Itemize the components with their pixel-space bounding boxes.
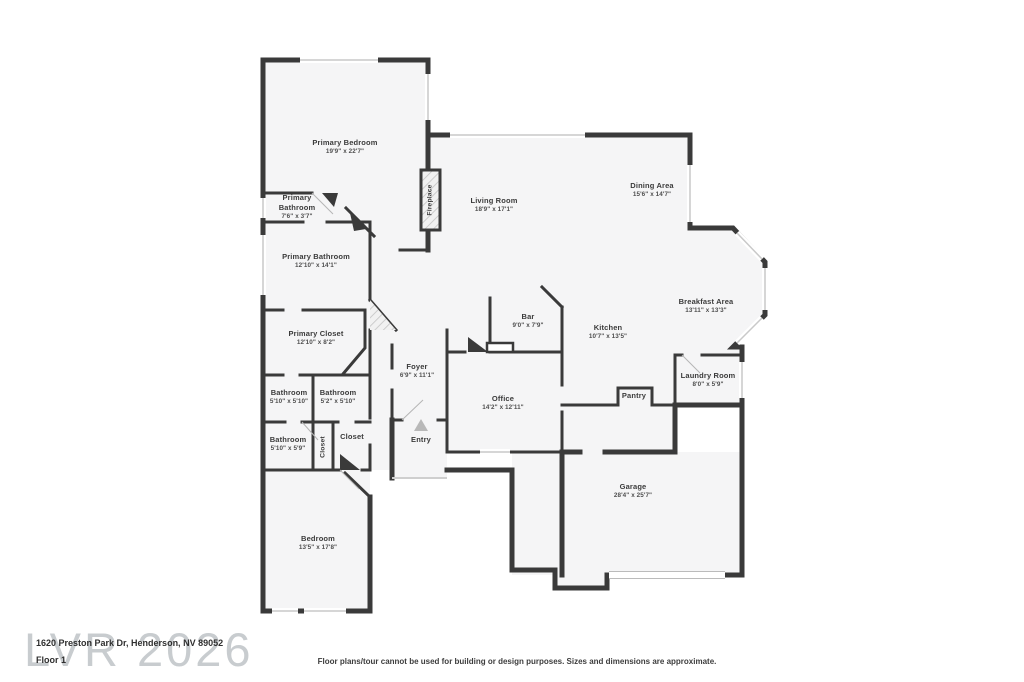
room-name: Garage <box>620 482 647 492</box>
room-label-bathroom-1: Bathroom 5'10" x 5'10" <box>270 388 308 406</box>
room-dims: 6'9" x 11'1" <box>400 372 434 380</box>
room-label-living-room: Living Room 18'9" x 17'1" <box>470 196 517 214</box>
room-name: Primary Bathroom <box>282 252 350 262</box>
bar-counter <box>487 343 513 352</box>
room-label-primary-bathroom: Primary Bathroom 12'10" x 14'1" <box>282 252 350 270</box>
room-label-entry: Entry <box>411 435 431 445</box>
garage-door <box>609 572 725 579</box>
floorplan-drawing <box>0 0 1024 682</box>
room-dims: 5'10" x 5'10" <box>270 398 308 406</box>
room-name: Bathroom <box>270 435 307 445</box>
room-name: Bedroom <box>301 534 335 544</box>
room-name: Dining Area <box>630 181 673 191</box>
room-label-bathroom-3: Bathroom 5'10" x 5'9" <box>270 435 307 453</box>
room-label-bedroom: Bedroom 13'5" x 17'8" <box>299 534 337 552</box>
room-dims: 28'4" x 25'7" <box>614 492 652 500</box>
room-name: Bathroom <box>271 388 308 398</box>
room-label-garage: Garage 28'4" x 25'7" <box>614 482 652 500</box>
room-dims: 5'2" x 5'10" <box>321 398 356 406</box>
room-dims: 15'6" x 14'7" <box>633 191 671 199</box>
room-label-fireplace: Fireplace <box>427 184 436 215</box>
room-label-primary-closet: Primary Closet 12'10" x 8'2" <box>288 329 343 347</box>
room-name: Living Room <box>470 196 517 206</box>
room-label-foyer: Foyer 6'9" x 11'1" <box>400 362 434 380</box>
room-label-bathroom-2: Bathroom 5'2" x 5'10" <box>320 388 357 406</box>
room-name: Fireplace <box>427 184 436 215</box>
room-dims: 5'10" x 5'9" <box>271 445 306 453</box>
room-name: Laundry Room <box>681 371 736 381</box>
room-dims: 8'0" x 5'9" <box>692 381 723 389</box>
room-label-office: Office 14'2" x 12'11" <box>482 394 524 412</box>
room-label-laundry-room: Laundry Room 8'0" x 5'9" <box>681 371 736 389</box>
room-dims: 12'10" x 8'2" <box>297 339 335 347</box>
room-label-kitchen: Kitchen 10'7" x 13'5" <box>589 323 627 341</box>
room-dims: 12'10" x 14'1" <box>295 262 337 270</box>
room-name: Entry <box>411 435 431 445</box>
room-label-dining-area: Dining Area 15'6" x 14'7" <box>630 181 673 199</box>
room-dims: 10'7" x 13'5" <box>589 333 627 341</box>
room-dims: 7'6" x 3'7" <box>281 213 312 221</box>
room-name: Primary Bedroom <box>312 138 377 148</box>
room-label-primary-bedroom: Primary Bedroom 19'9" x 22'7" <box>312 138 377 156</box>
room-name: Office <box>492 394 514 404</box>
room-label-primary-bathroom-small: Primary Bathroom 7'6" x 3'7" <box>271 193 323 221</box>
room-name: Kitchen <box>594 323 623 333</box>
room-dims: 13'5" x 17'8" <box>299 544 337 552</box>
room-dims: 14'2" x 12'11" <box>482 404 524 412</box>
property-address: 1620 Preston Park Dr, Henderson, NV 8905… <box>36 638 223 648</box>
room-label-breakfast-area: Breakfast Area 13'11" x 13'3" <box>679 297 734 315</box>
room-name: Breakfast Area <box>679 297 734 307</box>
room-name: Bathroom <box>320 388 357 398</box>
room-name: Pantry <box>622 391 646 401</box>
room-dims: 19'9" x 22'7" <box>326 148 364 156</box>
room-label-closet-vertical: Closet <box>320 436 329 458</box>
room-label-closet: Closet <box>340 432 364 442</box>
room-name: Foyer <box>406 362 427 372</box>
room-name: Closet <box>340 432 364 442</box>
room-dims: 18'9" x 17'1" <box>475 206 513 214</box>
disclaimer-text: Floor plans/tour cannot be used for buil… <box>318 657 717 666</box>
room-dims: 9'0" x 7'9" <box>512 322 543 330</box>
room-dims: 13'11" x 13'3" <box>685 307 727 315</box>
room-name: Closet <box>320 436 329 458</box>
floor-number: Floor 1 <box>36 655 66 665</box>
room-label-bar: Bar 9'0" x 7'9" <box>512 312 543 330</box>
room-label-pantry: Pantry <box>622 391 646 401</box>
room-name: Primary Closet <box>288 329 343 339</box>
room-name: Bar <box>522 312 535 322</box>
floorplan-page: Primary Bedroom 19'9" x 22'7" Primary Ba… <box>0 0 1024 682</box>
room-name: Primary Bathroom <box>271 193 323 213</box>
